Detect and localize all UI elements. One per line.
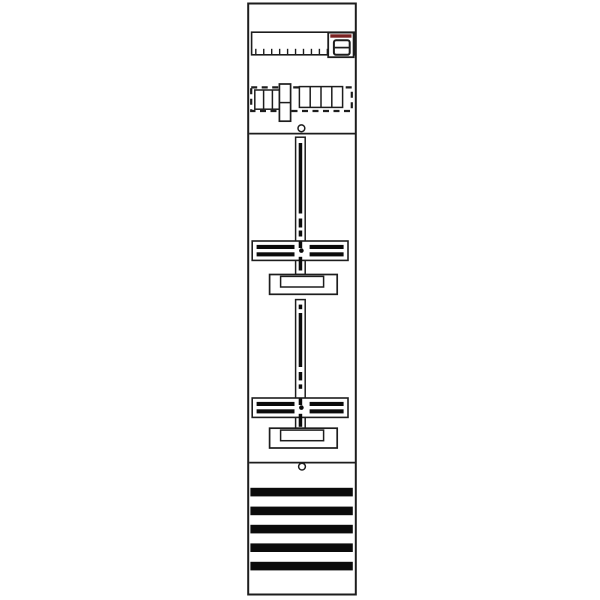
cross-center-dot: [299, 405, 304, 410]
rail-slot-segment: [299, 305, 303, 310]
rail-slot-segment: [299, 219, 303, 228]
cover-strip: [250, 507, 352, 516]
cover-strip: [250, 543, 352, 552]
cover-strip: [250, 525, 352, 534]
cover-strip: [250, 488, 352, 497]
rail-slot-segment: [299, 231, 303, 237]
rail-slot-segment: [299, 257, 303, 271]
screw-top: [298, 125, 305, 132]
device-icon-red-bar: [330, 34, 351, 37]
cover-strip: [250, 562, 352, 571]
rail-slot-segment: [299, 242, 303, 249]
cross-slot-bottom-left: [257, 409, 295, 413]
rail-slot-segment: [299, 313, 303, 367]
cross-slot-bottom-right: [310, 252, 344, 256]
din-rail-ruler: [252, 32, 355, 57]
terminal-left-block: [255, 90, 281, 109]
screw-bottom: [299, 463, 306, 470]
meter-panel-diagram: [0, 0, 600, 600]
cross-slot-bottom-left: [257, 252, 295, 256]
figure-canvas: [0, 0, 600, 600]
cross-center-dot: [299, 248, 304, 253]
rail-slot-segment: [299, 143, 303, 214]
meter-field-2-bracket: [270, 428, 338, 448]
cross-slot-top-left: [257, 402, 295, 406]
cross-slot-top-right: [310, 245, 344, 249]
cross-slot-top-right: [310, 402, 344, 406]
rail-slot-segment: [299, 384, 303, 388]
rail-slot-segment: [299, 399, 303, 406]
cross-slot-top-left: [257, 245, 295, 249]
device-bracket-outer: [270, 428, 338, 448]
rail-slot-segment: [299, 372, 303, 380]
meter-field-1-bracket: [270, 275, 338, 295]
cross-slot-bottom-right: [310, 409, 344, 413]
din-device-icon: [328, 33, 353, 58]
device-bracket-outer: [270, 275, 338, 295]
rail-slot-segment: [299, 414, 303, 427]
